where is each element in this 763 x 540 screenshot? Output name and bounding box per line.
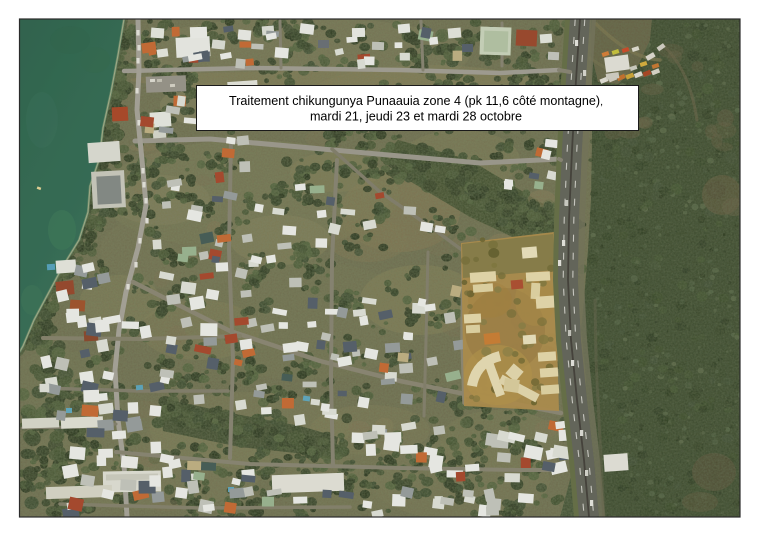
svg-text:Traitement chikungunya Punaaui: Traitement chikungunya Punaauia zone 4 (… (229, 94, 603, 108)
svg-text:mardi 21, jeudi 23 et mardi 28: mardi 21, jeudi 23 et mardi 28 octobre (310, 110, 522, 124)
